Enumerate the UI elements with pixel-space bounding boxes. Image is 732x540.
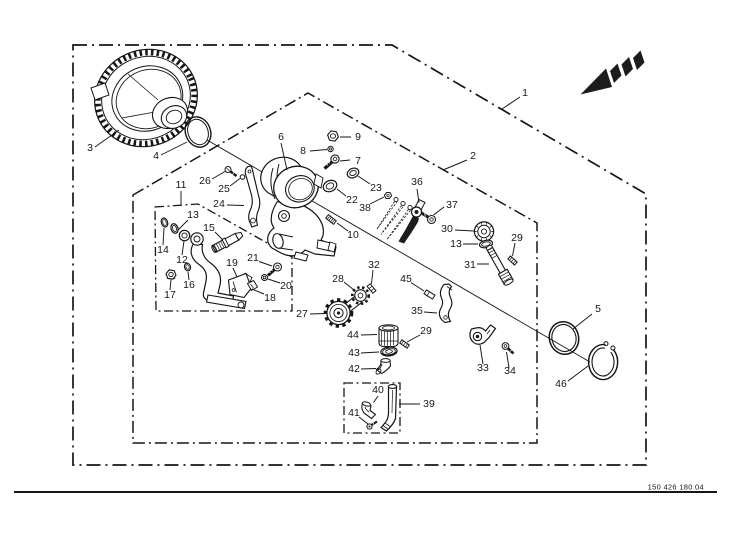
callout-34: 34	[504, 365, 516, 377]
part-26-screw	[225, 167, 237, 177]
part-35-lever	[439, 284, 452, 323]
part-10-spring-pin	[326, 215, 337, 225]
callout-7: 7	[355, 155, 361, 167]
callout-24: 24	[213, 198, 225, 210]
callout-28: 28	[332, 273, 344, 285]
part-5-o-ring	[545, 318, 582, 358]
part-27-hand-knob	[325, 295, 361, 326]
callout-20: 20	[280, 280, 292, 292]
part-44-knurled-bushing	[379, 325, 398, 347]
part-12-washer	[179, 230, 189, 240]
callout-5: 5	[595, 303, 601, 315]
callout-14: 14	[157, 244, 169, 256]
callout-1: 1	[522, 87, 528, 99]
leader-lines	[95, 97, 592, 424]
callout-29b: 29	[511, 232, 523, 244]
part-41-screw	[367, 422, 377, 430]
callout-32: 32	[368, 259, 380, 271]
callout-37: 37	[446, 199, 458, 211]
part-34-bolt	[502, 343, 513, 354]
callout-38: 38	[359, 202, 371, 214]
part-42-elbow-fitting	[375, 359, 390, 375]
part-25-ball	[240, 175, 245, 180]
callout-29a: 29	[420, 325, 432, 337]
callout-42: 42	[348, 363, 360, 375]
part-29b-spring-pin	[508, 256, 517, 265]
callout-13b: 13	[450, 238, 462, 250]
part-40-elbow	[362, 401, 376, 418]
part-46-snap-ring	[589, 342, 618, 380]
part-23-washer	[346, 166, 361, 179]
callout-33: 33	[477, 362, 489, 374]
callout-19: 19	[226, 257, 238, 269]
part-17-nut	[166, 270, 176, 279]
callout-10: 10	[347, 229, 359, 241]
callout-23: 23	[370, 182, 382, 194]
part-32-pin	[367, 284, 376, 293]
callout-12: 12	[176, 254, 188, 266]
part-38-nut	[384, 192, 391, 198]
callout-9: 9	[355, 131, 361, 143]
callout-35: 35	[411, 305, 423, 317]
callout-40: 40	[372, 384, 384, 396]
part-33-pawl-hook	[470, 325, 496, 344]
callout-3: 3	[87, 142, 93, 154]
callout-13a: 13	[187, 209, 199, 221]
callout-43: 43	[348, 347, 360, 359]
part-14-o-ring	[160, 217, 169, 228]
callout-17: 17	[164, 289, 176, 301]
part-7-bolt	[325, 155, 340, 169]
part-31-adjusting-rod	[484, 244, 514, 287]
drawing-number: 150 426 180 04	[648, 483, 704, 492]
part-9-nut	[328, 131, 339, 141]
part-3-gear-pulley	[79, 33, 213, 163]
callout-46: 46	[555, 378, 567, 390]
callout-6: 6	[278, 131, 284, 143]
part-43-washer	[380, 346, 397, 356]
callout-27: 27	[296, 308, 308, 320]
part-20-washer	[262, 275, 268, 281]
callout-8: 8	[300, 145, 306, 157]
callout-16: 16	[183, 279, 195, 291]
part-15-threaded-pin	[210, 230, 244, 254]
part-6-bearing-bracket	[255, 151, 336, 261]
callout-44: 44	[347, 329, 359, 341]
part-22-washer	[321, 178, 338, 194]
callout-39: 39	[423, 398, 435, 410]
callout-15: 15	[203, 222, 215, 234]
callout-21: 21	[247, 252, 259, 264]
callout-4: 4	[153, 150, 159, 162]
callout-25: 25	[218, 183, 230, 195]
callout-18: 18	[264, 292, 276, 304]
callout-36: 36	[411, 176, 423, 188]
callout-22: 22	[346, 194, 358, 206]
part-8-washer	[328, 146, 333, 151]
callout-2: 2	[470, 150, 476, 162]
callout-30: 30	[441, 223, 453, 235]
part-24-curved-lever	[245, 166, 260, 227]
callout-41: 41	[348, 407, 360, 419]
direction-arrow-icon	[581, 51, 645, 95]
callout-26: 26	[199, 175, 211, 187]
diagram-page: 1 2 3 4 5 6 7 8 9 10 11 12 13 13 14 15 1…	[0, 0, 732, 540]
part-30-knurled-cap	[474, 222, 493, 241]
callout-31: 31	[464, 259, 476, 271]
part-13a-o-ring	[170, 223, 179, 234]
callout-11: 11	[176, 179, 187, 191]
part-45-pin	[424, 290, 435, 299]
callout-45: 45	[400, 273, 412, 285]
